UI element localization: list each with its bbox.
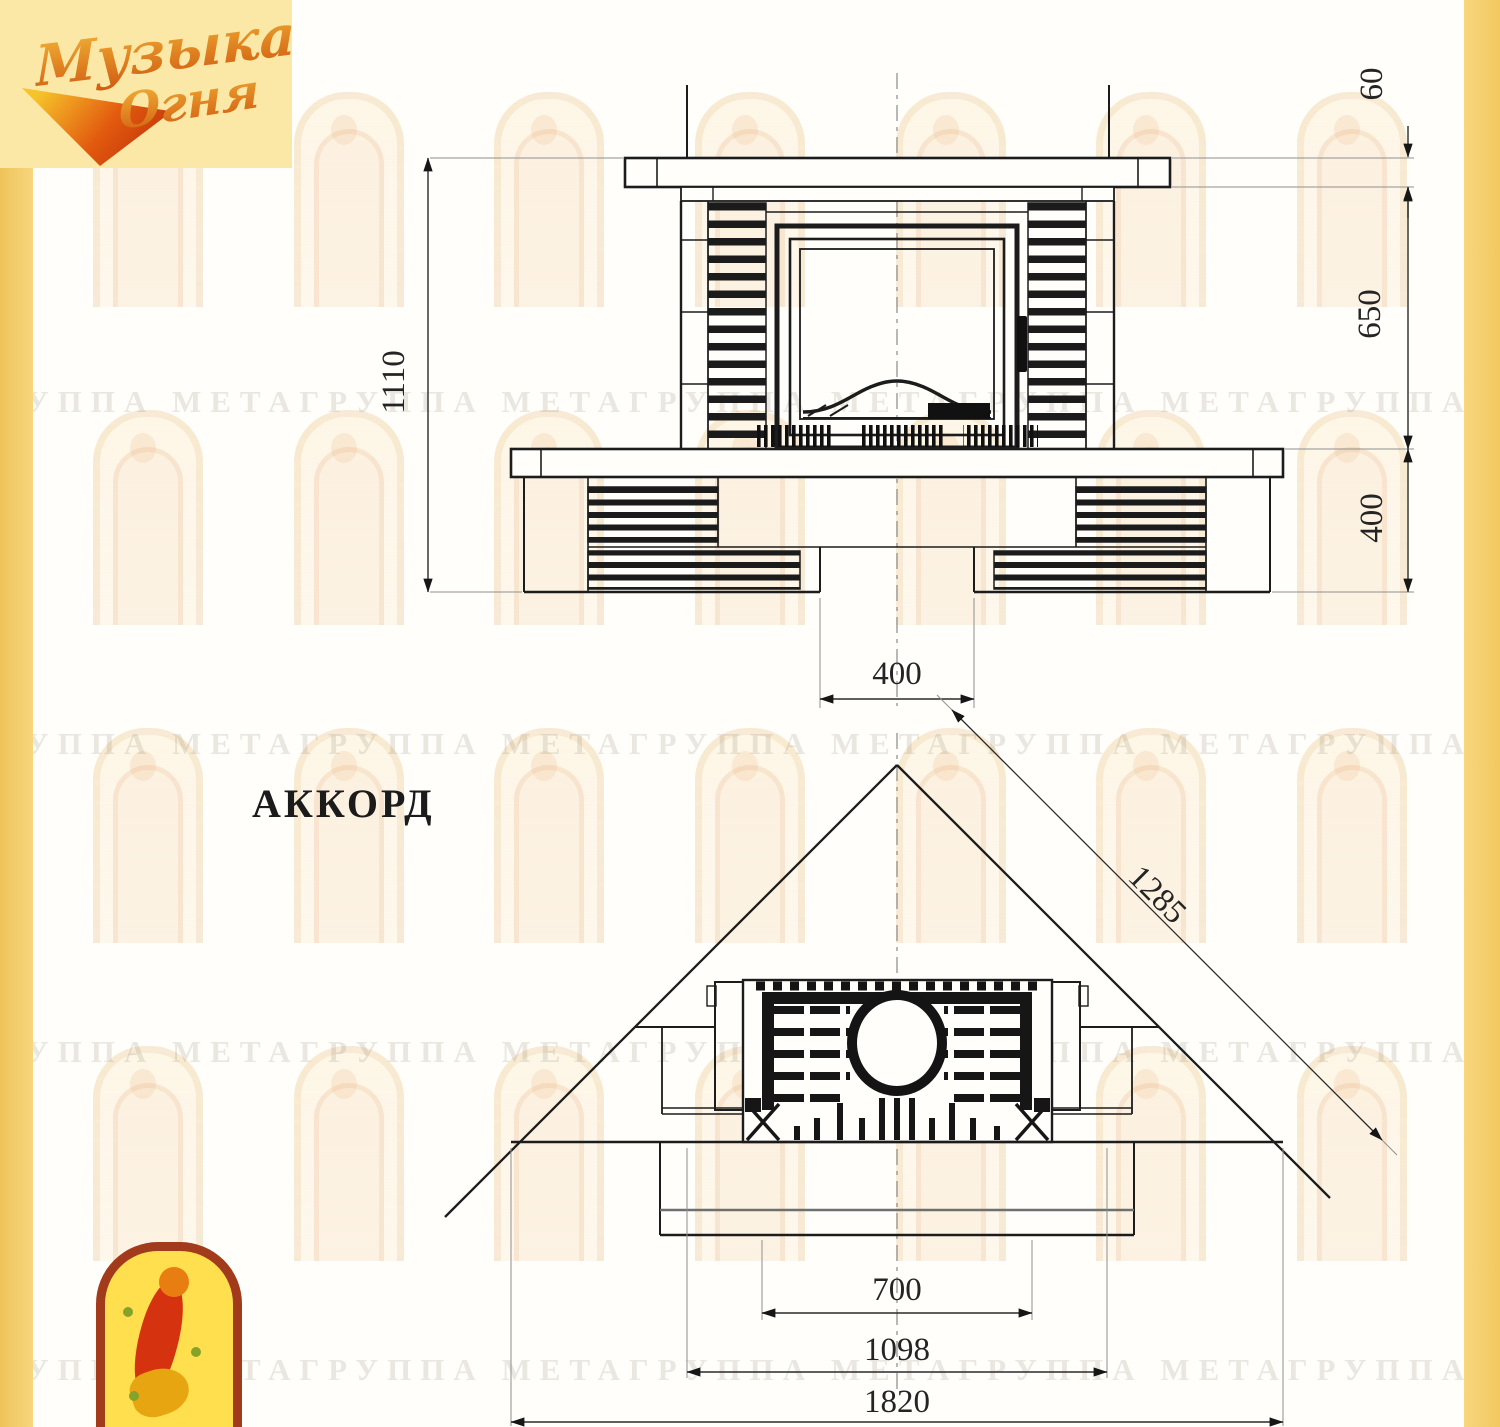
page-root: ГРУППА МЕТАГРУППА МЕТАГРУППА МЕТАГРУППА …	[0, 0, 1500, 1427]
dim-front-recess: 400	[872, 656, 922, 692]
brand-logo: Музыка Огня	[0, 0, 292, 168]
technical-drawing: 1110 60 650 400 400	[0, 0, 1500, 1427]
flue-outlet	[852, 995, 942, 1091]
vent-grille	[757, 425, 1038, 447]
door-handle	[1017, 316, 1027, 372]
dim-plan-firebox-width: 700	[872, 1272, 922, 1308]
emblem-dot	[123, 1307, 133, 1317]
dim-plan-total-width: 1820	[864, 1384, 930, 1420]
plan-firebox	[743, 980, 1052, 1142]
dim-front-shelf: 60	[1354, 68, 1390, 101]
jester-head-icon	[159, 1267, 189, 1297]
dim-plan-diagonal: 1285	[1121, 859, 1193, 931]
dim-front-total-height: 1110	[376, 350, 412, 414]
jester-emblem	[96, 1242, 242, 1427]
emblem-dot	[191, 1347, 201, 1357]
dim-front-base: 400	[1354, 493, 1390, 543]
dim-front-firebox-zone: 650	[1352, 289, 1388, 339]
model-title: АККОРД	[252, 780, 435, 827]
left-border-strip	[0, 0, 33, 1427]
dim-plan-body-width: 1098	[864, 1332, 930, 1368]
firebox-door	[777, 226, 1027, 448]
right-border-strip	[1464, 0, 1500, 1427]
emblem-dot	[129, 1391, 139, 1401]
front-view	[511, 73, 1283, 706]
